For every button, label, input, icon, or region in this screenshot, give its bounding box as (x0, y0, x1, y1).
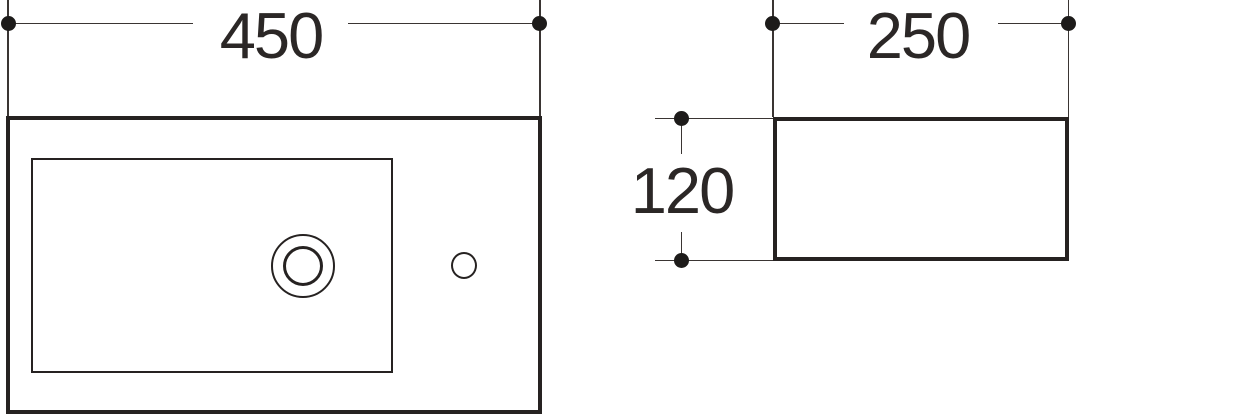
height-dim-line-top-segment (681, 124, 683, 154)
depth-dim-endpoint-left (765, 16, 780, 31)
height-dim-label: 120 (557, 162, 807, 218)
side-view-outline (773, 117, 1069, 261)
basin-side-view: 250 120 (0, 0, 1250, 416)
depth-dim-label: 250 (793, 7, 1043, 63)
basin-dimension-drawing: 450 250 120 (0, 0, 1250, 416)
height-dim-endpoint-top (674, 111, 689, 126)
height-dim-extension-top (655, 118, 773, 120)
depth-dim-endpoint-right (1061, 16, 1076, 31)
height-dim-extension-bottom (655, 260, 773, 262)
height-dim-endpoint-bottom (674, 253, 689, 268)
